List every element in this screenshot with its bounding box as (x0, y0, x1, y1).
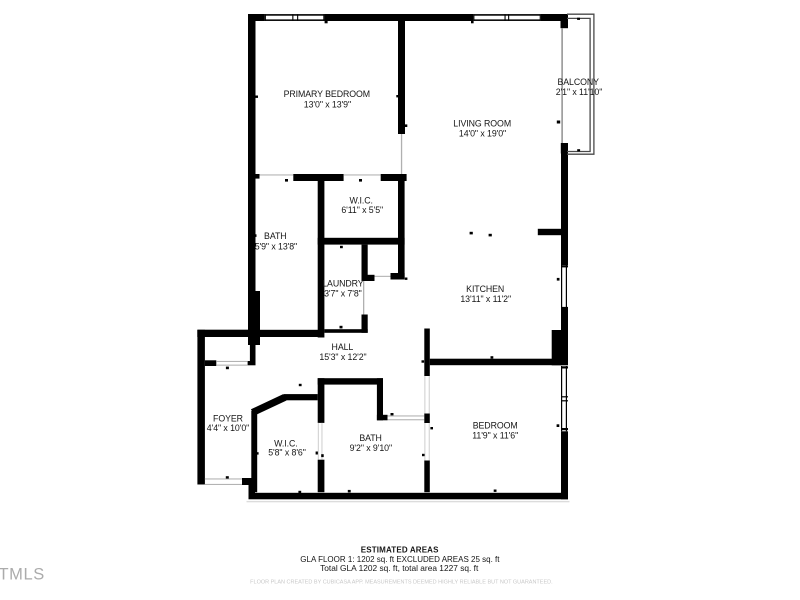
svg-text:13'11" x 11'2": 13'11" x 11'2" (460, 294, 511, 304)
svg-text:9'2" x 9'10": 9'2" x 9'10" (350, 443, 392, 453)
svg-text:FOYER: FOYER (213, 413, 243, 423)
svg-text:BALCONY: BALCONY (557, 77, 599, 87)
svg-text:6'11" x 5'5": 6'11" x 5'5" (341, 205, 383, 215)
svg-text:2'1" x 11'10": 2'1" x 11'10" (556, 87, 603, 97)
svg-text:LIVING ROOM: LIVING ROOM (453, 119, 511, 129)
svg-text:3'7" x 7'8": 3'7" x 7'8" (324, 288, 362, 298)
svg-text:Total GLA 1202 sq. ft, total a: Total GLA 1202 sq. ft, total area 1227 s… (320, 563, 479, 573)
svg-text:LAUNDRY: LAUNDRY (322, 279, 364, 289)
svg-text:14'0" x 19'0": 14'0" x 19'0" (459, 128, 506, 138)
svg-text:4'4" x 10'0": 4'4" x 10'0" (207, 423, 249, 433)
svg-text:TMLS: TMLS (0, 566, 45, 584)
svg-text:HALL: HALL (332, 342, 354, 352)
svg-text:KITCHEN: KITCHEN (466, 284, 504, 294)
svg-text:15'3" x 12'2": 15'3" x 12'2" (319, 352, 366, 362)
svg-text:PRIMARY BEDROOM: PRIMARY BEDROOM (284, 89, 370, 99)
svg-text:13'0" x 13'9": 13'0" x 13'9" (304, 99, 351, 109)
svg-text:BATH: BATH (264, 231, 287, 241)
svg-text:W.I.C.: W.I.C. (349, 196, 372, 206)
svg-text:BATH: BATH (359, 433, 382, 443)
svg-text:ESTIMATED AREAS: ESTIMATED AREAS (361, 545, 439, 554)
svg-text:BEDROOM: BEDROOM (473, 420, 518, 430)
svg-text:FLOOR PLAN CREATED BY CUBICASA: FLOOR PLAN CREATED BY CUBICASA APP. MEAS… (250, 580, 553, 586)
svg-text:11'9" x 11'6": 11'9" x 11'6" (472, 431, 518, 441)
svg-text:5'8" x 8'6": 5'8" x 8'6" (268, 448, 306, 458)
svg-text:5'9" x 13'8": 5'9" x 13'8" (255, 241, 297, 251)
